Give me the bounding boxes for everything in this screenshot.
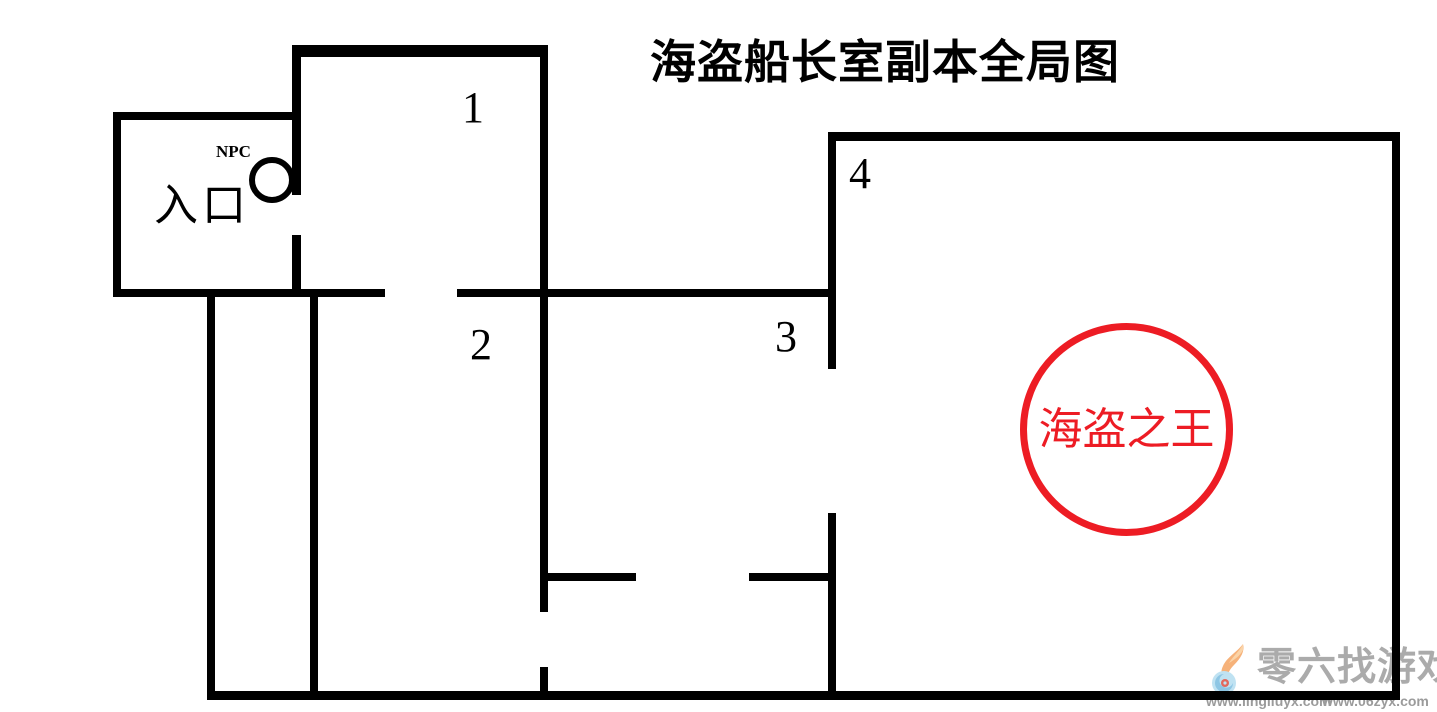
boss-label: 海盗之王	[1039, 408, 1215, 452]
wall-segment	[113, 289, 385, 297]
wall-segment	[828, 513, 836, 696]
entrance-label: 入口	[154, 184, 250, 228]
dungeon-map: 海盗船长室副本全局图 1 2 3 4 入口 NPC 海盗之王 零六找游戏 www…	[0, 0, 1437, 712]
wall-segment	[830, 132, 1400, 141]
wall-segment	[207, 293, 215, 696]
room-label-1: 1	[462, 86, 484, 130]
wall-segment	[113, 112, 121, 297]
npc-marker-circle	[249, 157, 295, 203]
room-label-4: 4	[849, 152, 871, 196]
wall-segment	[207, 691, 1400, 700]
boss-marker-circle: 海盗之王	[1020, 323, 1233, 536]
flame-logo-icon	[1203, 643, 1261, 697]
watermark-brand-text: 零六找游戏	[1257, 648, 1437, 687]
wall-segment	[292, 235, 301, 297]
npc-label: NPC	[216, 143, 251, 160]
wall-segment	[310, 293, 318, 696]
wall-segment	[749, 573, 836, 581]
wall-segment	[540, 667, 548, 697]
watermark: 零六找游戏 www.lingliuyx.com www.06zyx.com	[1195, 640, 1437, 712]
page-title: 海盗船长室副本全局图	[620, 40, 1150, 86]
room-label-2: 2	[470, 323, 492, 367]
wall-segment	[113, 112, 301, 120]
wall-segment	[293, 45, 548, 57]
wall-segment	[457, 289, 835, 297]
room-label-3: 3	[775, 315, 797, 359]
wall-segment	[545, 573, 636, 581]
wall-segment	[1392, 132, 1400, 697]
wall-segment	[540, 45, 548, 612]
wall-segment	[828, 132, 836, 369]
